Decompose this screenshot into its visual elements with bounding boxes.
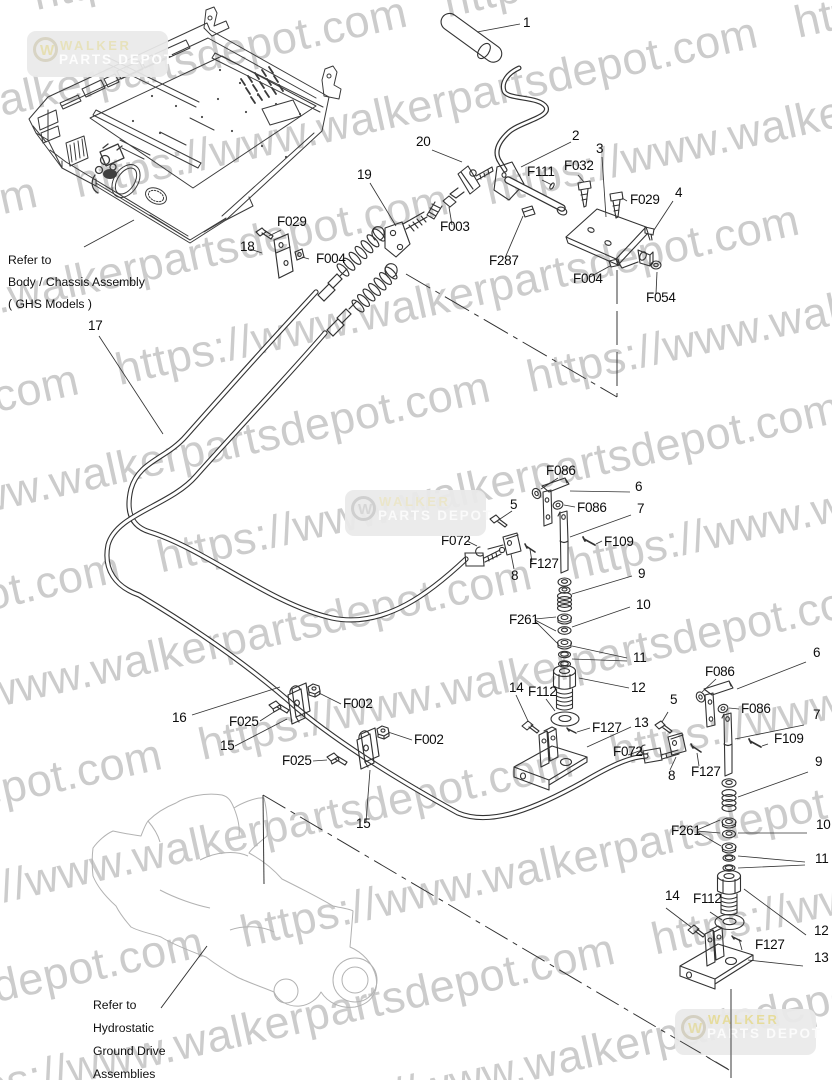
svg-text:F004: F004 — [573, 271, 603, 286]
svg-text:19: 19 — [357, 167, 371, 182]
svg-text:F112: F112 — [693, 891, 722, 906]
svg-text:13: 13 — [634, 715, 648, 730]
svg-text:11: 11 — [815, 851, 828, 866]
svg-text:F127: F127 — [691, 764, 721, 779]
svg-text:F054: F054 — [646, 290, 676, 305]
svg-text:F002: F002 — [414, 732, 444, 747]
svg-text:F287: F287 — [489, 253, 519, 268]
svg-text:9: 9 — [638, 566, 645, 581]
svg-text:Refer to: Refer to — [93, 998, 137, 1012]
svg-text:7: 7 — [813, 707, 820, 722]
svg-text:F086: F086 — [741, 701, 771, 716]
svg-text:F112: F112 — [528, 684, 557, 699]
svg-text:F029: F029 — [630, 192, 660, 207]
svg-text:F003: F003 — [440, 219, 470, 234]
svg-text:1: 1 — [523, 15, 530, 30]
svg-text:F086: F086 — [577, 500, 607, 515]
svg-text:11: 11 — [633, 650, 646, 665]
svg-text:20: 20 — [416, 134, 430, 149]
svg-text:18: 18 — [240, 239, 254, 254]
svg-text:16: 16 — [172, 710, 186, 725]
svg-text:F004: F004 — [316, 251, 346, 266]
svg-text:10: 10 — [816, 817, 830, 832]
svg-text:3: 3 — [596, 141, 603, 156]
svg-text:F127: F127 — [755, 937, 785, 952]
svg-text:Ground Drive: Ground Drive — [93, 1044, 166, 1058]
svg-text:12: 12 — [814, 923, 828, 938]
svg-text:F029: F029 — [277, 214, 307, 229]
svg-text:8: 8 — [668, 768, 675, 783]
svg-text:F025: F025 — [282, 753, 312, 768]
svg-text:12: 12 — [631, 680, 645, 695]
svg-text:13: 13 — [814, 950, 828, 965]
svg-text:( GHS Models ): ( GHS Models ) — [8, 297, 92, 311]
svg-text:7: 7 — [637, 501, 644, 516]
svg-text:Hydrostatic: Hydrostatic — [93, 1021, 154, 1035]
svg-text:Body / Chassis Assembly: Body / Chassis Assembly — [8, 275, 146, 289]
svg-text:Refer to: Refer to — [8, 253, 52, 267]
svg-text:F127: F127 — [529, 556, 559, 571]
svg-text:Assemblies: Assemblies — [93, 1067, 155, 1080]
svg-text:17: 17 — [88, 318, 102, 333]
svg-text:F025: F025 — [229, 714, 259, 729]
svg-text:5: 5 — [670, 692, 677, 707]
svg-text:F261: F261 — [671, 823, 701, 838]
svg-text:F261: F261 — [509, 612, 539, 627]
svg-text:6: 6 — [813, 645, 820, 660]
svg-text:F086: F086 — [705, 664, 735, 679]
svg-text:F032: F032 — [564, 158, 594, 173]
svg-text:F086: F086 — [546, 463, 576, 478]
svg-text:2: 2 — [572, 128, 579, 143]
svg-text:8: 8 — [511, 568, 518, 583]
svg-text:F072: F072 — [613, 744, 643, 759]
svg-text:9: 9 — [815, 754, 822, 769]
svg-text:14: 14 — [665, 888, 680, 903]
svg-text:F109: F109 — [774, 731, 804, 746]
svg-text:10: 10 — [636, 597, 650, 612]
svg-text:F002: F002 — [343, 696, 373, 711]
svg-text:6: 6 — [635, 479, 642, 494]
svg-text:F127: F127 — [592, 720, 622, 735]
svg-text:4: 4 — [675, 185, 683, 200]
svg-text:14: 14 — [509, 680, 524, 695]
svg-text:15: 15 — [356, 816, 370, 831]
svg-text:15: 15 — [220, 738, 234, 753]
svg-text:5: 5 — [510, 497, 517, 512]
svg-text:F111: F111 — [527, 164, 555, 179]
svg-text:F109: F109 — [604, 534, 634, 549]
